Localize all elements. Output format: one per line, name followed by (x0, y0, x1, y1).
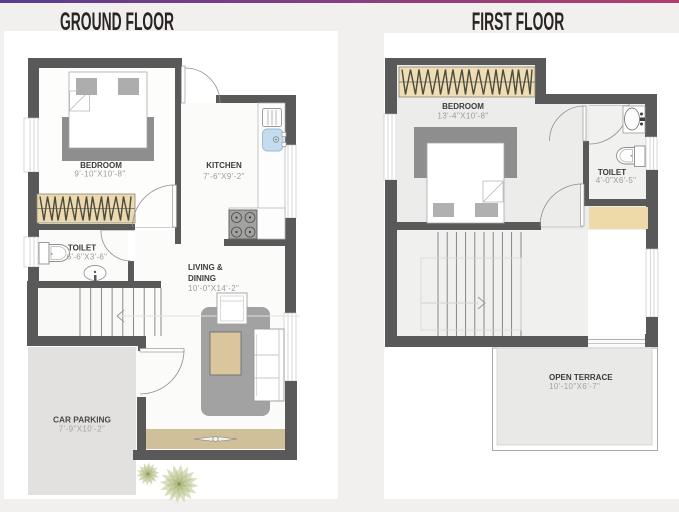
svg-text:4'-0"X6'-5": 4'-0"X6'-5" (596, 176, 637, 185)
svg-text:6'-6"X3'-6": 6'-6"X3'-6" (67, 253, 108, 262)
svg-text:7'-6"X9'-2": 7'-6"X9'-2" (203, 172, 245, 181)
svg-text:KITCHEN: KITCHEN (206, 161, 242, 170)
svg-text:7'-9"X10'-2": 7'-9"X10'-2" (59, 425, 105, 434)
svg-text:BEDROOM: BEDROOM (442, 102, 484, 111)
svg-text:10'-0"X14'-2": 10'-0"X14'-2" (188, 284, 239, 293)
svg-text:LIVING &: LIVING & (188, 263, 223, 272)
svg-text:FIRST FLOOR: FIRST FLOOR (472, 9, 565, 36)
svg-text:TOILET: TOILET (68, 244, 96, 253)
svg-text:9'-10"X10'-8": 9'-10"X10'-8" (74, 170, 125, 179)
svg-text:10'-10"X6'-7": 10'-10"X6'-7" (549, 382, 600, 391)
svg-text:DINING: DINING (188, 274, 216, 283)
svg-text:13'-4"X10'-8": 13'-4"X10'-8" (437, 112, 488, 121)
svg-text:CAR PARKING: CAR PARKING (53, 415, 111, 425)
svg-text:OPEN TERRACE: OPEN TERRACE (549, 373, 613, 382)
